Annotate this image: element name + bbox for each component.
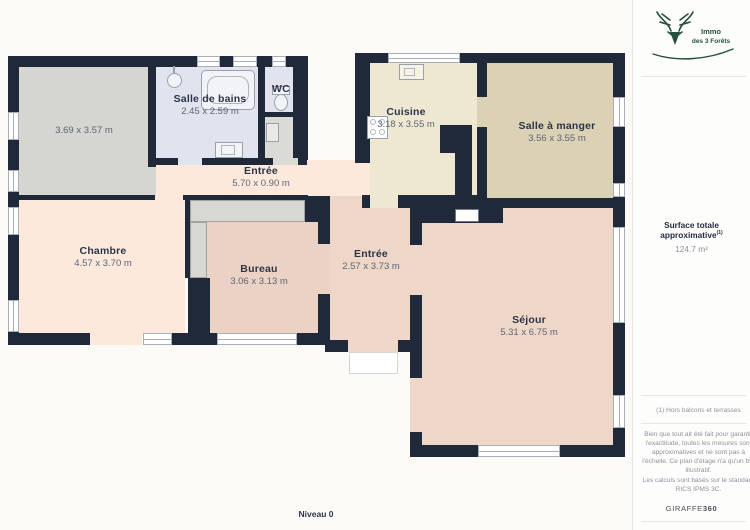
window: [613, 183, 625, 197]
vanity-inner-icon: [221, 145, 235, 155]
wall: [410, 432, 422, 457]
doorway: [348, 340, 398, 352]
room-label-bathroom: Salle de bains 2.45 x 2.59 m: [174, 93, 247, 117]
room-label-dining: Salle à manger 3.56 x 3.55 m: [519, 120, 596, 144]
doorway: [273, 158, 298, 165]
wall: [362, 195, 370, 208]
footnote-text: (1) Hors balcons et terrasses: [633, 406, 750, 415]
wall: [8, 333, 90, 345]
doorway: [318, 244, 330, 294]
stove-burner-icon: [370, 119, 376, 125]
wall: [410, 208, 422, 245]
wall: [172, 333, 217, 345]
doorway: [90, 333, 142, 345]
stove-burner-icon: [370, 129, 376, 135]
porch-step: [349, 352, 398, 374]
sink-tap-icon: [173, 66, 175, 73]
wall: [185, 200, 190, 278]
wall: [258, 158, 273, 165]
room-label-office: Bureau 3.06 x 3.13 m: [230, 263, 288, 287]
wall: [477, 63, 487, 97]
doorway: [178, 158, 202, 165]
wall: [455, 150, 472, 208]
wardrobe: [190, 200, 305, 222]
room-label-entry: Entrée 2.57 x 3.73 m: [342, 248, 400, 272]
doorway: [410, 245, 422, 295]
wall: [258, 67, 265, 158]
room-name: Chambre: [74, 245, 132, 257]
room-name: Salle de bains: [174, 93, 247, 105]
window: [613, 395, 625, 428]
logo-text-line1: Immo: [701, 27, 721, 36]
room-name: Entrée: [232, 165, 290, 177]
window: [613, 97, 625, 127]
standard-text: Les calculs sont basés sur le standard R…: [633, 476, 750, 494]
wall: [265, 112, 293, 117]
wall: [487, 198, 613, 208]
divider: [641, 423, 746, 424]
wall: [410, 295, 422, 342]
room-label-wc: WC: [272, 83, 290, 95]
wall: [355, 53, 370, 163]
room-name: Cuisine: [377, 106, 435, 118]
floor-plan-page: 3.69 x 3.57 m Salle de bains 2.45 x 2.59…: [0, 0, 750, 530]
window: [388, 53, 460, 63]
room-dims: 2.57 x 3.73 m: [342, 261, 400, 272]
room-name: Salle à manger: [519, 120, 596, 132]
sink-icon: [167, 73, 182, 88]
room-dims: 2.45 x 2.59 m: [174, 106, 247, 117]
floor-plan: 3.69 x 3.57 m Salle de bains 2.45 x 2.59…: [0, 0, 632, 530]
wall: [8, 56, 308, 67]
wall: [477, 127, 487, 208]
room-living-floor: [503, 208, 613, 223]
sidebar: Immo des 3 Forêts Surface totale approxi…: [632, 0, 750, 530]
wall: [298, 158, 307, 165]
room-name: Bureau: [230, 263, 288, 275]
wall: [202, 158, 258, 165]
disclaimer-text: Bien que tout ait été fait pour garantir…: [633, 430, 750, 475]
surface-total-label: Surface totale approximative(1): [633, 220, 750, 240]
room-label-bedroom: Chambre 4.57 x 3.70 m: [74, 245, 132, 269]
window: [272, 56, 286, 67]
wall: [148, 67, 156, 167]
room-dims: 3.06 x 3.13 m: [230, 276, 288, 287]
room-label-terrace: 3.69 x 3.57 m: [55, 124, 113, 136]
window: [197, 56, 220, 67]
divider: [641, 395, 746, 396]
room-label-kitchen: Cuisine 3.18 x 3.55 m: [377, 106, 435, 130]
room-dims: 5.70 x 0.90 m: [232, 178, 290, 189]
window: [8, 112, 19, 140]
room-dims: 3.69 x 3.57 m: [55, 125, 113, 136]
window: [8, 300, 19, 332]
wall: [188, 278, 210, 333]
radiator-icon: [455, 209, 479, 222]
surface-footnote-marker: (1): [717, 230, 723, 236]
room-name: WC: [272, 83, 290, 95]
doorway: [477, 97, 487, 127]
window: [8, 207, 19, 235]
divider: [641, 76, 746, 77]
wardrobe: [190, 222, 207, 278]
wall: [148, 158, 178, 165]
wall: [19, 195, 155, 200]
level-label: Niveau 0: [299, 509, 334, 519]
logo-text-line2: des 3 Forêts: [692, 38, 731, 45]
kitchen-sink-inner-icon: [404, 68, 415, 76]
surface-total-value: 124.7 m²: [633, 244, 750, 254]
window: [143, 333, 172, 345]
divider: [641, 521, 746, 522]
boiler-icon: [266, 123, 279, 142]
room-dims: 5.31 x 6.75 m: [500, 327, 558, 338]
brand-logo: GIRAFFE360: [633, 504, 750, 513]
surface-total-block: Surface totale approximative(1) 124.7 m²: [633, 220, 750, 254]
window: [613, 227, 625, 323]
agency-logo: Immo des 3 Forêts: [641, 8, 741, 68]
room-dims: 4.57 x 3.70 m: [74, 258, 132, 269]
room-name: Séjour: [500, 314, 558, 326]
room-name: Entrée: [342, 248, 400, 260]
window: [233, 56, 257, 67]
doorway: [370, 195, 398, 208]
wall: [318, 196, 330, 244]
room-label-living: Séjour 5.31 x 6.75 m: [500, 314, 558, 338]
toilet-bowl-icon: [274, 94, 288, 111]
window: [478, 445, 560, 457]
wall: [300, 56, 308, 160]
room-dims: 3.56 x 3.55 m: [519, 133, 596, 144]
wall: [183, 195, 308, 200]
wall: [318, 294, 330, 345]
wall: [440, 125, 472, 153]
doorway: [410, 378, 422, 432]
window: [8, 170, 19, 192]
room-label-hallway: Entrée 5.70 x 0.90 m: [232, 165, 290, 189]
door-arc: [328, 132, 355, 159]
deer-logo-icon: Immo des 3 Forêts: [641, 8, 741, 64]
room-dims: 3.18 x 3.55 m: [377, 119, 435, 130]
window: [217, 333, 297, 345]
